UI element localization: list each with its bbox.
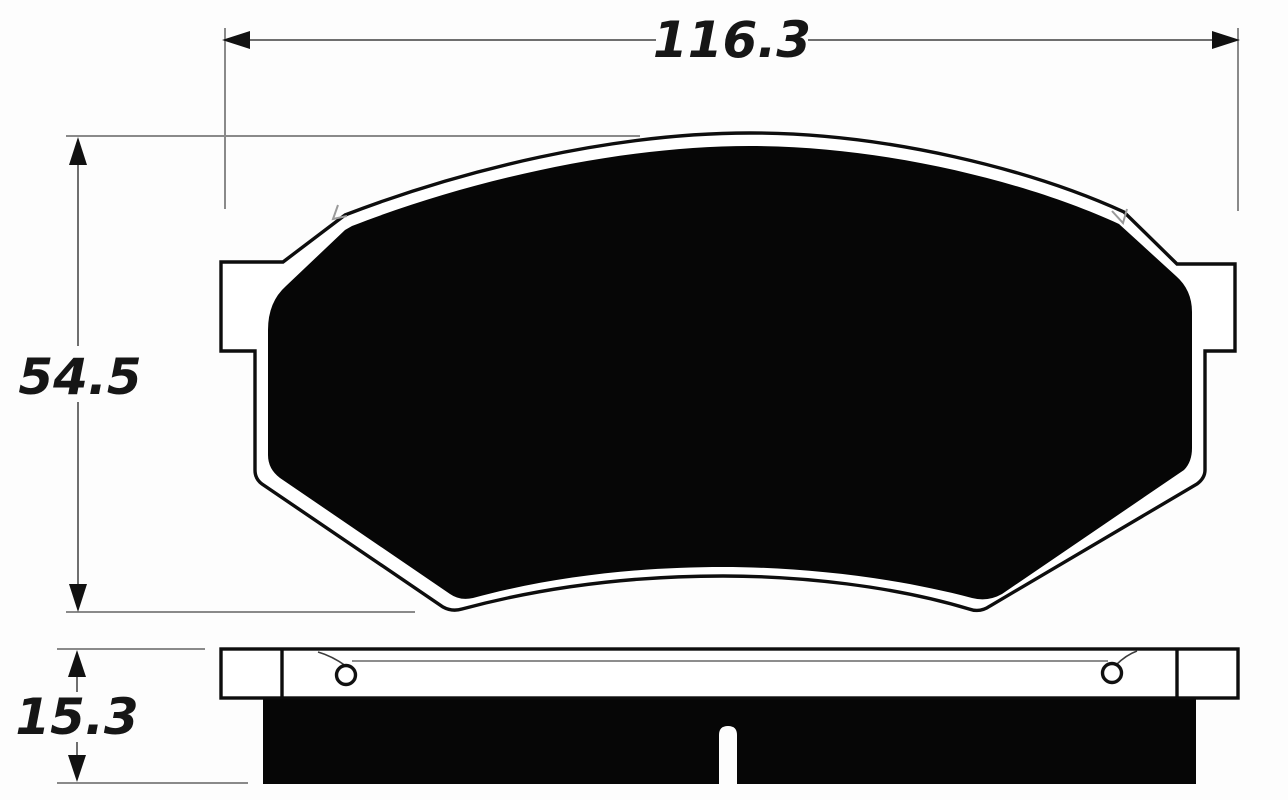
width-arrow-left bbox=[222, 31, 250, 49]
friction-material bbox=[268, 146, 1192, 599]
chamfer-mark-left bbox=[333, 205, 347, 219]
dimension-thickness: 15.3 bbox=[14, 649, 248, 783]
rivet-hole-right bbox=[1103, 664, 1122, 683]
pad-side-view bbox=[221, 649, 1238, 784]
width-arrow-right bbox=[1212, 31, 1240, 49]
wear-slot bbox=[719, 726, 737, 784]
brake-pad-dimension-drawing: 116.3 54.5 15.3 bbox=[0, 0, 1288, 800]
width-label: 116.3 bbox=[653, 11, 811, 69]
drawing-canvas: 116.3 54.5 15.3 bbox=[0, 0, 1288, 800]
pad-front-view bbox=[221, 133, 1235, 610]
rivet-hole-left bbox=[337, 666, 356, 685]
side-backing-plate bbox=[221, 649, 1238, 698]
height-arrow-bottom bbox=[69, 584, 87, 612]
height-label: 54.5 bbox=[18, 348, 141, 406]
height-arrow-top bbox=[69, 137, 87, 165]
thickness-arrow-bottom bbox=[68, 755, 86, 782]
thickness-arrow-top bbox=[68, 650, 86, 677]
thickness-label: 15.3 bbox=[15, 688, 138, 746]
